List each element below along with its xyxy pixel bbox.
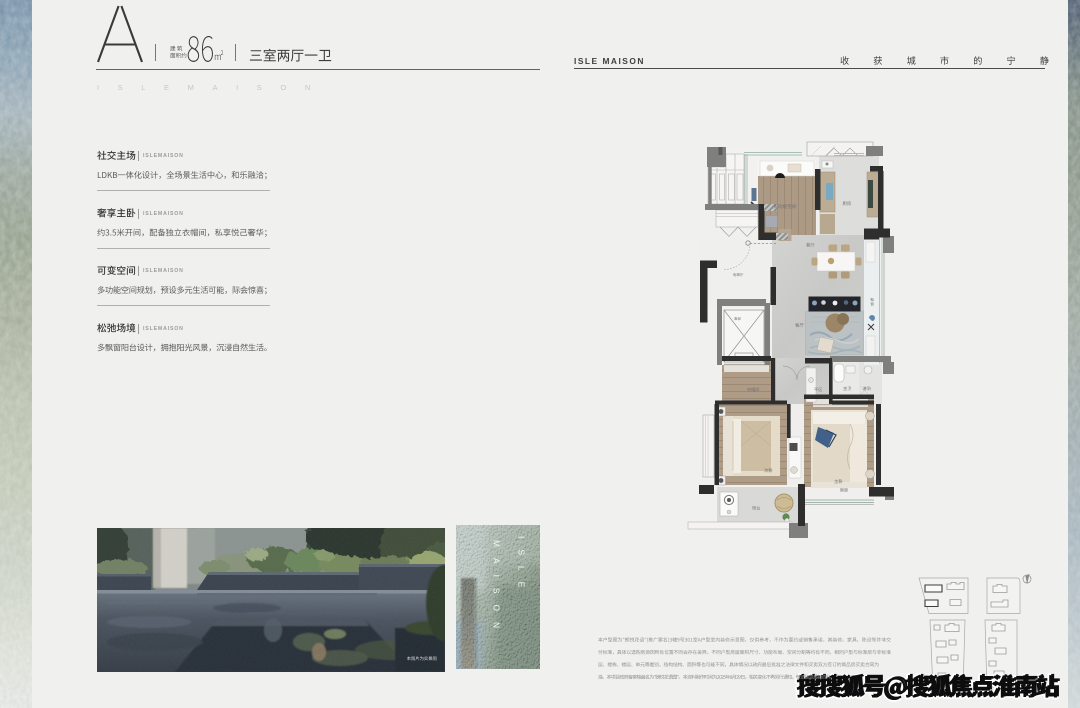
svg-text:MAISON: MAISON xyxy=(492,540,502,639)
svg-text:ISLE: ISLE xyxy=(517,536,527,598)
